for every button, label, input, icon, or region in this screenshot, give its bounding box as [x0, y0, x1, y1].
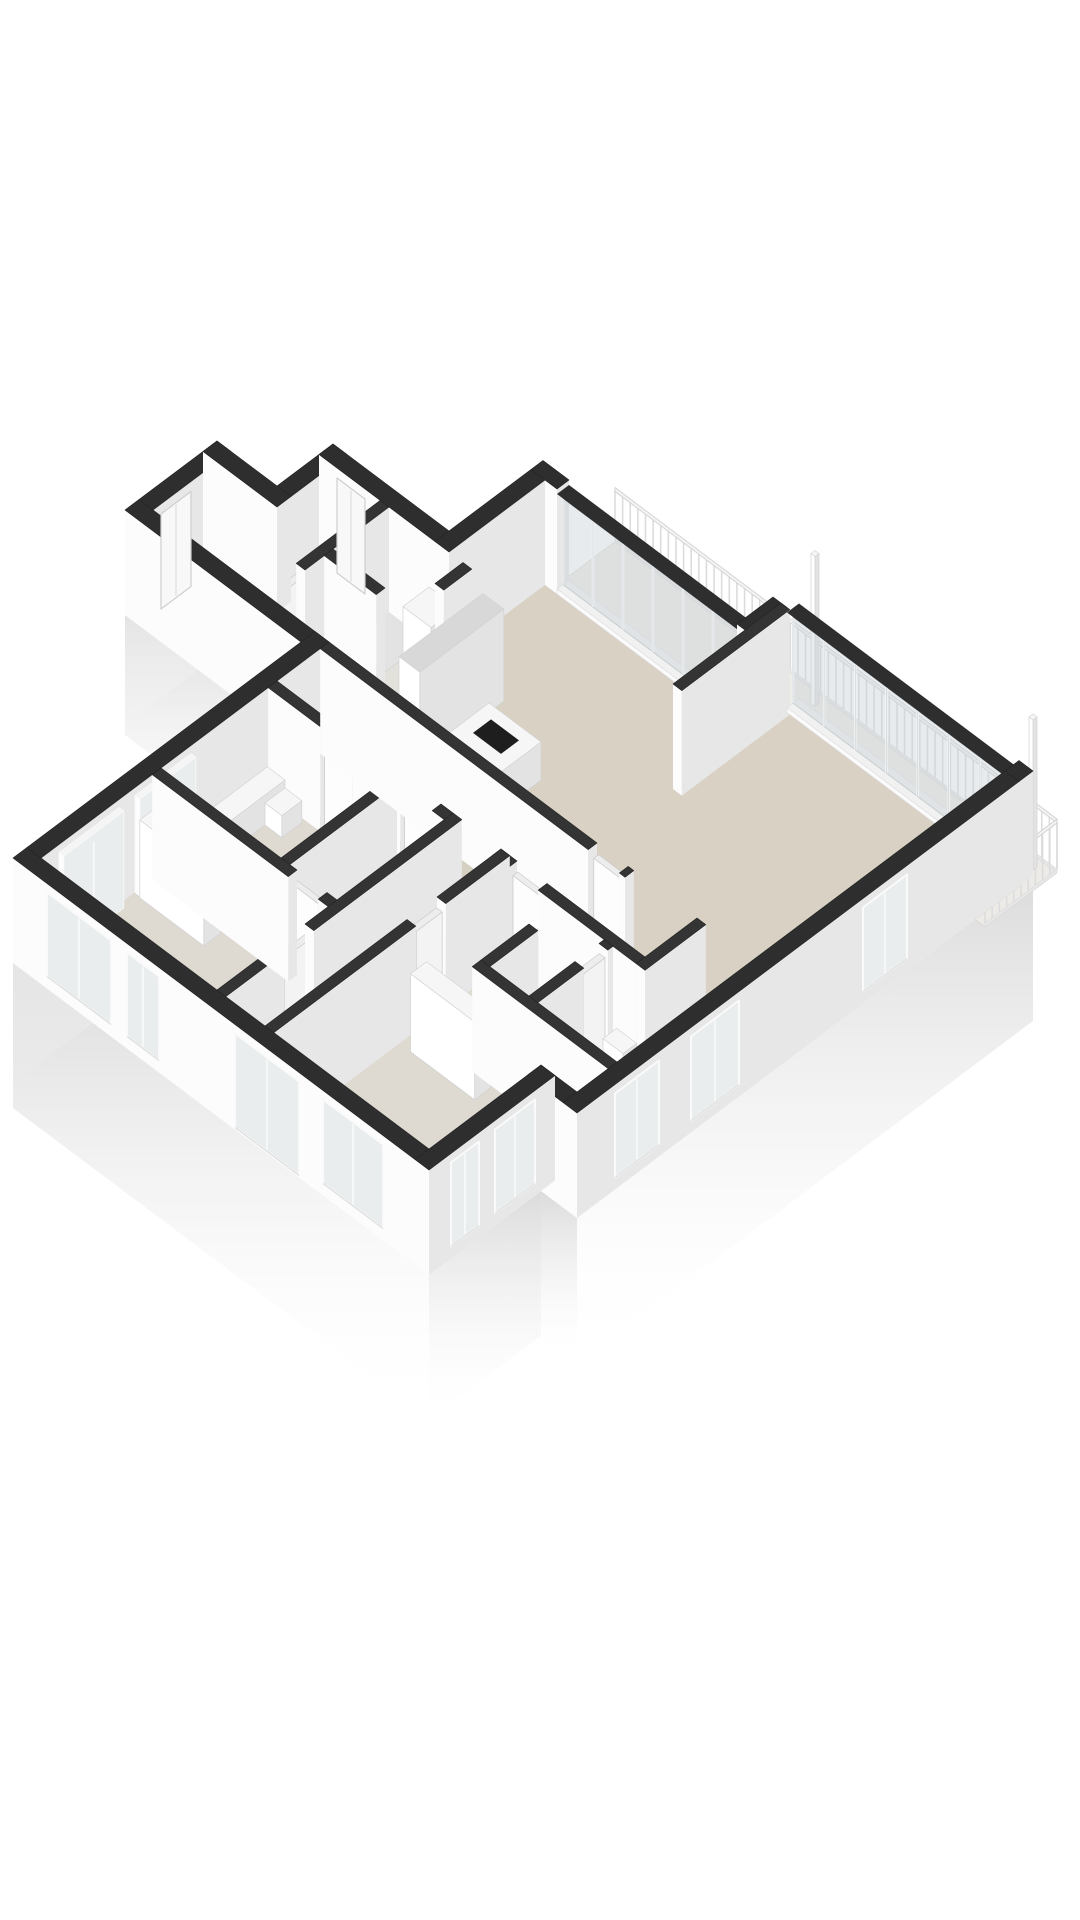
wall-se-upper	[563, 1103, 577, 1219]
wall-se-lower	[415, 1160, 429, 1276]
entry-closet-doors	[337, 478, 365, 594]
wall-bed1-bed2-a	[288, 870, 297, 982]
wall-annex-ne	[277, 497, 291, 613]
floorplan-3d-view	[0, 0, 1080, 1920]
wall-living-fin	[673, 684, 682, 796]
plinth-se-step	[541, 1191, 577, 1363]
floor-plan-svg	[0, 0, 1080, 1920]
wall-corner-pier-east	[1017, 771, 1033, 888]
